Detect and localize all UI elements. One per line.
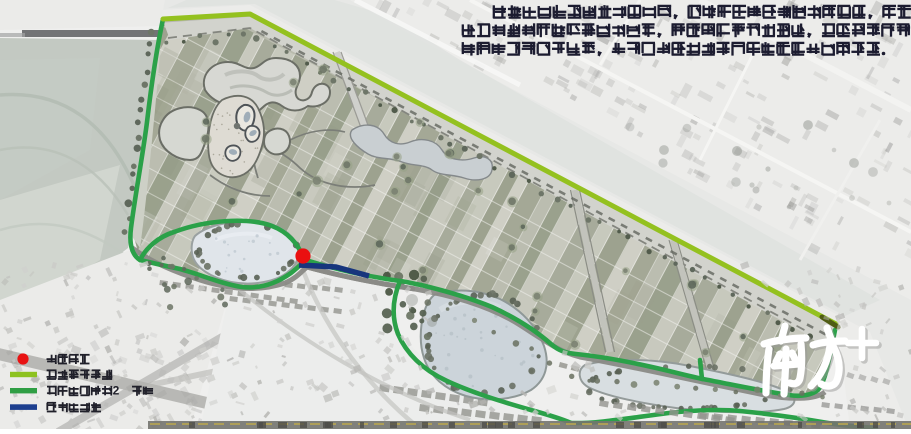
svg-text:2: 2 xyxy=(113,384,120,398)
